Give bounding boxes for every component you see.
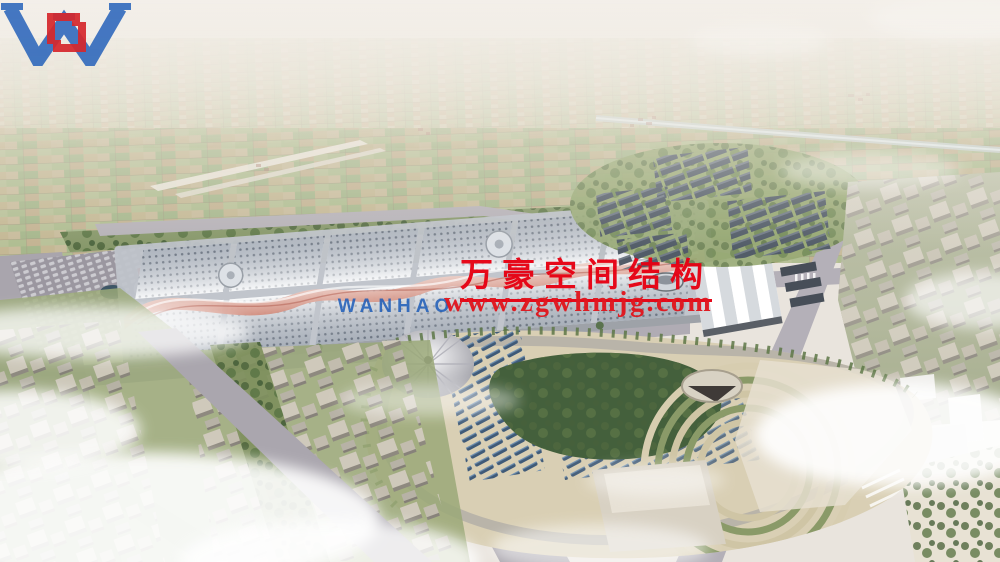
crater-structure [682,370,742,402]
oval-pavilion [649,273,683,291]
aerial-rendering: WANHAO 万豪空间结构 www.zgwhmjg.com [0,0,1000,562]
scene-svg [0,0,1000,562]
atmospheric-haze [0,0,1000,250]
